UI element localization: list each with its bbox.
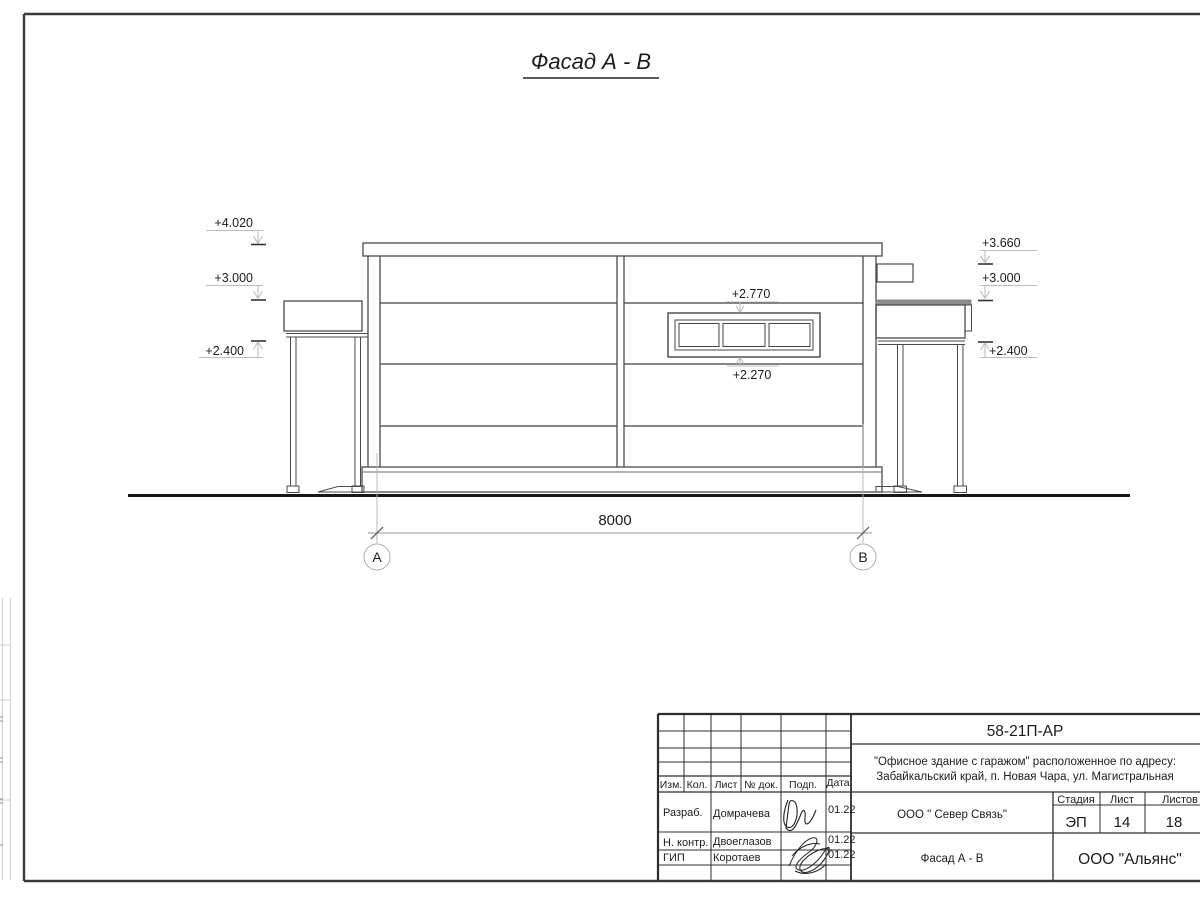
elev-right-low-text: +2.400: [989, 344, 1028, 358]
row-role-ncontr: Н. контр.: [663, 837, 708, 849]
elevation-mark-left-mid: +3.000: [206, 271, 266, 300]
axis-b-label: В: [858, 549, 867, 565]
drawing-frame: [24, 14, 1200, 881]
col-kol: Кол.: [687, 779, 708, 791]
row-role-gip: ГИП: [663, 852, 685, 864]
elevation-mark-window-bottom: +2.270: [727, 358, 779, 383]
col-izm: Изм.: [660, 779, 683, 791]
stage-value: ЭП: [1065, 814, 1087, 831]
row-role-razrab: Разраб.: [663, 807, 703, 819]
left-margin-scrap: [0, 598, 11, 880]
signature-ncontr-gip: [789, 838, 829, 874]
col-data: Дата: [826, 777, 849, 789]
elevation-mark-left-top: +4.020: [206, 216, 266, 245]
window-top-mark-text: +2.770: [732, 287, 771, 301]
dimension-8000-text: 8000: [598, 512, 631, 529]
ribbon-window: [668, 313, 820, 357]
project-line2: Забайкальский край, п. Новая Чара, ул. М…: [876, 771, 1174, 783]
elev-right-top-text: +3.660: [982, 236, 1021, 250]
company-name: ООО "Альянс": [1078, 851, 1182, 868]
parapet-cap: [363, 243, 882, 256]
sheet-title: Фасад А - В: [921, 853, 984, 865]
axis-a-label: А: [372, 549, 382, 565]
elevation-mark-left-low: +2.400: [199, 341, 266, 358]
wall-pilasters: [368, 256, 876, 467]
window-bottom-mark-text: +2.270: [733, 368, 772, 382]
row-date-razrab: 01.22: [828, 804, 856, 816]
row-date-ncontr: 01.22: [828, 834, 856, 846]
ramp-left: [318, 487, 362, 493]
canopy-left: [284, 301, 368, 493]
plinth: [362, 467, 882, 492]
sheet-label: Лист: [1110, 794, 1134, 806]
drawing-title-text: Фасад А - В: [531, 49, 651, 74]
project-line1: "Офисное здание с гаражом" расположенное…: [874, 756, 1176, 768]
wall-panel-joints: [380, 303, 863, 426]
elevation-mark-right-low: +2.400: [978, 342, 1037, 358]
sheets-label: Листов: [1162, 794, 1198, 806]
col-podp: Подп.: [789, 779, 817, 791]
axis-marker-a: А: [364, 544, 390, 570]
signature-razrab: [784, 800, 816, 831]
elev-right-mid-text: +3.000: [982, 271, 1021, 285]
row-name-razrab: Домрачева: [713, 808, 771, 820]
col-list: Лист: [715, 779, 738, 791]
doc-number: 58-21П-АР: [987, 723, 1064, 740]
building-elevation: [284, 243, 972, 493]
col-doc: № док.: [744, 779, 778, 791]
sheet-value: 14: [1114, 814, 1131, 831]
axis-marker-b: В: [850, 544, 876, 570]
ramp-right: [876, 487, 922, 493]
stage-label: Стадия: [1057, 794, 1095, 806]
dimension-8000: 8000: [368, 424, 872, 543]
elevation-mark-window-top: +2.770: [726, 287, 778, 313]
drawing-title: Фасад А - В: [523, 49, 659, 78]
elev-left-mid-text: +3.000: [214, 271, 253, 285]
elev-left-top-text: +4.020: [214, 216, 253, 230]
facade-drawing-svg: Фасад А - В: [0, 0, 1200, 900]
elev-left-low-text: +2.400: [205, 344, 244, 358]
canopy-right: [876, 300, 972, 493]
client-name: ООО " Север Связь": [897, 809, 1007, 821]
row-date-gip: 01.22: [828, 849, 856, 861]
title-block: Изм. Кол. Лист № док. Подп. Дата Разраб.…: [658, 714, 1200, 881]
sign-box: [877, 264, 913, 282]
row-name-gip: Коротаев: [713, 852, 761, 864]
elevation-mark-right-top: +3.660: [978, 236, 1037, 264]
sheets-value: 18: [1166, 814, 1183, 831]
drawing-sheet: Фасад А - В: [0, 0, 1200, 900]
elevation-mark-right-mid: +3.000: [978, 271, 1037, 301]
row-name-ncontr: Двоеглазов: [713, 836, 772, 848]
